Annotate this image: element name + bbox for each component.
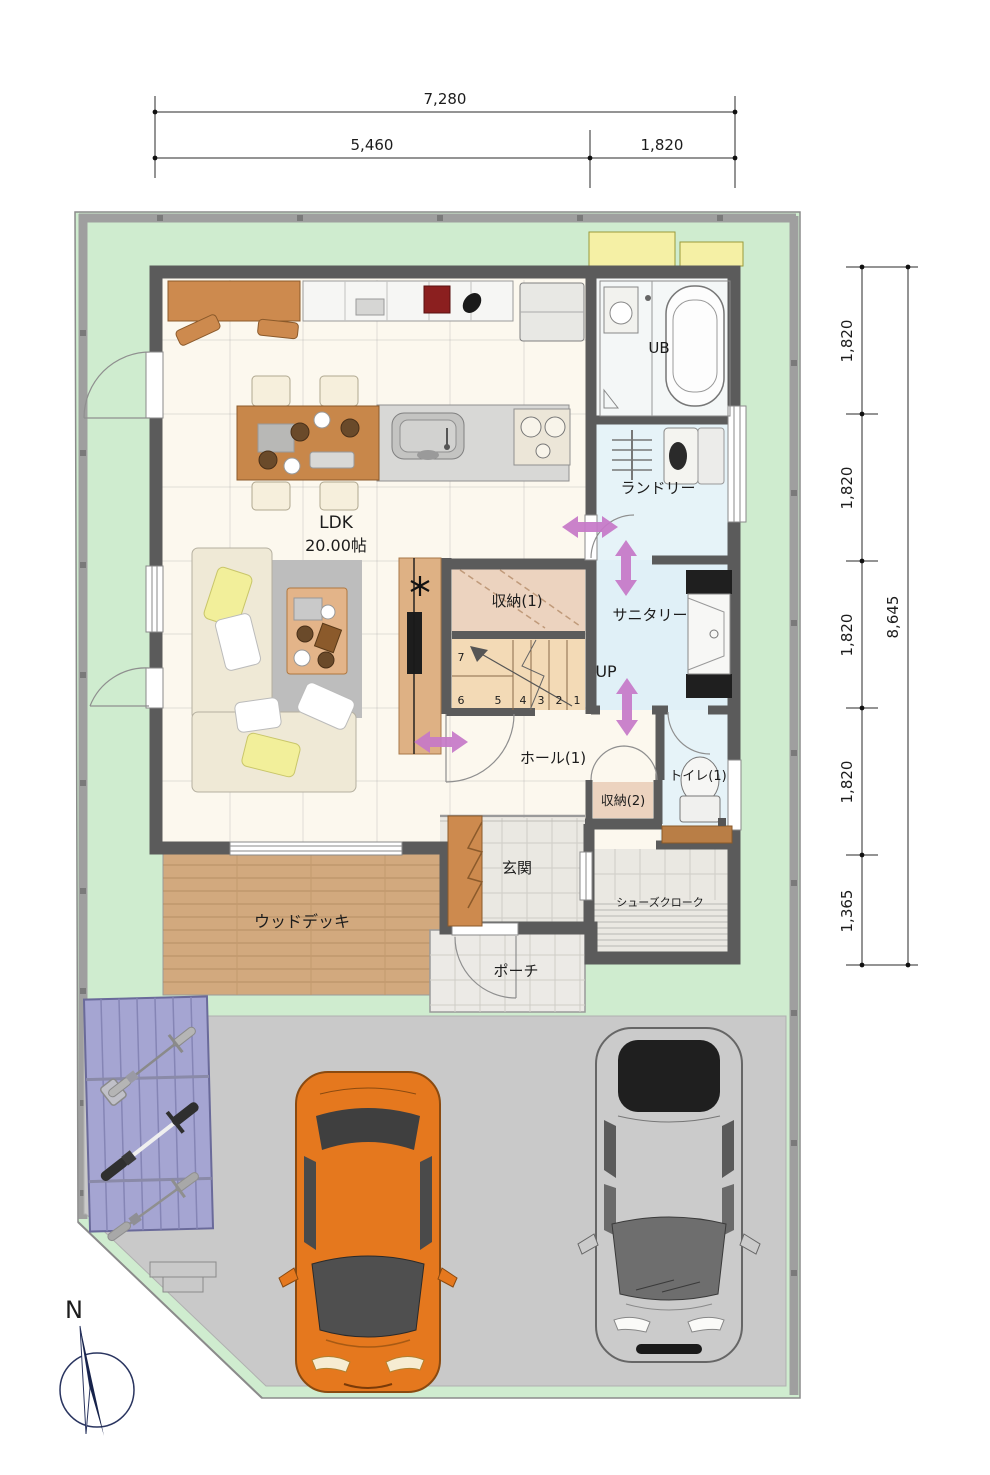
dim-right-seg-2: 1,820	[838, 614, 856, 657]
dim-top-right: 1,820	[641, 136, 684, 154]
toilet-counter	[662, 826, 732, 843]
sanitary-vanity	[686, 570, 732, 698]
svg-text:7: 7	[458, 651, 465, 664]
svg-text:1: 1	[574, 694, 581, 707]
label-toilet-1: トイレ(1)	[669, 769, 726, 784]
cooktop	[514, 409, 570, 465]
label-wood-deck: ウッドデッキ	[254, 912, 350, 931]
dimension-right	[846, 265, 918, 968]
car-silver	[578, 1028, 760, 1362]
label-porch: ポーチ	[493, 962, 538, 980]
compass-north-label: N	[65, 1296, 83, 1324]
label-entrance: 玄関	[502, 859, 532, 877]
dim-right-seg-1: 1,820	[838, 467, 856, 510]
label-hall-1: ホール(1)	[520, 749, 586, 767]
car-orange	[279, 1072, 457, 1392]
tv-board	[399, 558, 441, 754]
compass: N	[60, 1296, 134, 1436]
svg-text:4: 4	[520, 694, 527, 707]
entrance-cabinet	[448, 816, 482, 926]
svg-text:6: 6	[458, 694, 465, 707]
label-up: UP	[595, 662, 617, 681]
dim-right-seg-0: 1,820	[838, 320, 856, 363]
compass-needle-light	[80, 1326, 90, 1434]
floor-plan-drawing: LDK 20.00帖 UB ランドリー サニタリー 収納(1) UP ホール(1…	[0, 0, 990, 1475]
label-laundry: ランドリー	[620, 479, 695, 497]
washing-machine	[669, 442, 687, 470]
kitchen-back-counter	[303, 281, 513, 321]
label-unit-bath: UB	[648, 339, 669, 357]
label-sanitary: サニタリー	[612, 606, 687, 624]
floor-plan-canvas: LDK 20.00帖 UB ランドリー サニタリー 収納(1) UP ホール(1…	[0, 0, 990, 1475]
label-storage-1: 収納(1)	[491, 592, 542, 610]
svg-text:5: 5	[495, 694, 502, 707]
dim-top-total: 7,280	[424, 90, 467, 108]
label-ldk: LDK	[319, 513, 354, 533]
refrigerator	[520, 283, 584, 341]
dim-right-total: 8,645	[884, 596, 902, 639]
microwave	[424, 286, 450, 313]
bathtub	[666, 286, 724, 406]
coffee-table	[287, 588, 347, 674]
svg-text:3: 3	[538, 694, 545, 707]
label-ldk-size: 20.00帖	[305, 536, 367, 555]
svg-text:2: 2	[556, 694, 563, 707]
dim-right-seg-3: 1,820	[838, 761, 856, 804]
dim-top-left: 5,460	[351, 136, 394, 154]
label-storage-2: 収納(2)	[601, 794, 645, 809]
label-shoe-closet: シューズクローク	[616, 895, 703, 909]
dim-right-seg-4: 1,365	[838, 890, 856, 933]
